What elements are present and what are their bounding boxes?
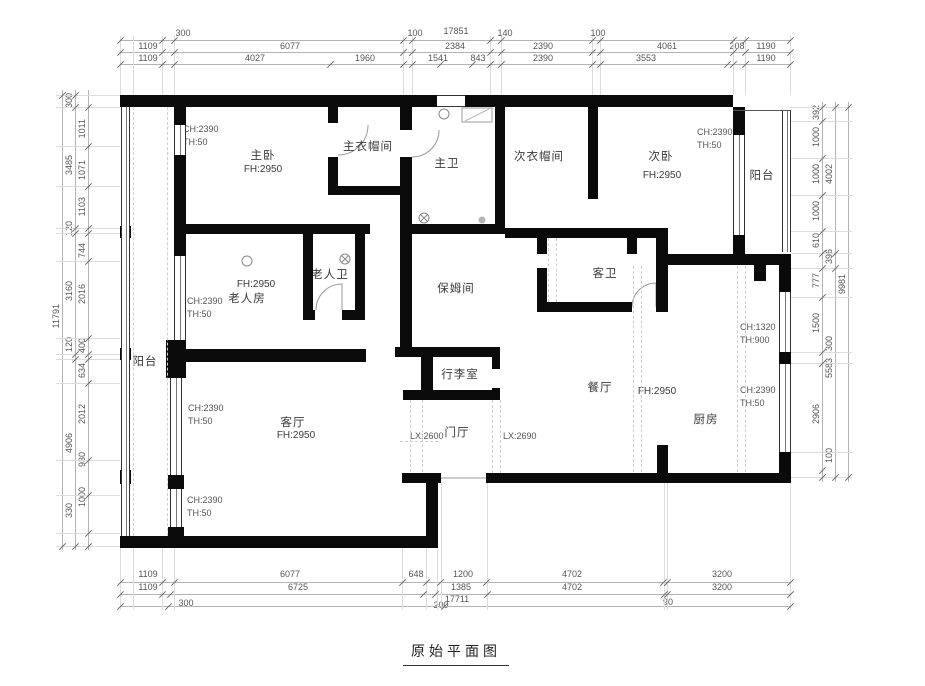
dimension-line: [120, 52, 790, 53]
dim-label: 610: [812, 233, 821, 248]
dim-label: 6077: [280, 42, 300, 51]
foyer-lx-left: LX:2600: [410, 431, 444, 441]
extension-line: [664, 483, 665, 610]
window: [174, 256, 186, 340]
projection-line: [500, 400, 501, 473]
extension-line: [790, 483, 791, 610]
dim-label: 2906: [812, 404, 821, 424]
dim-label: 1000: [812, 127, 821, 147]
room-height-second-bedroom: FH:2950: [643, 170, 681, 181]
wall: [779, 352, 791, 364]
dim-label: 2390: [533, 54, 553, 63]
wall: [403, 390, 500, 400]
dim-label: 1071: [78, 160, 87, 180]
window: [121, 107, 130, 536]
light-icon: [242, 256, 252, 266]
wall: [328, 107, 338, 123]
dim-label: 648: [408, 570, 423, 579]
projection-line: [133, 107, 134, 536]
projection-line: [422, 400, 423, 472]
wall: [303, 310, 315, 320]
wall: [120, 95, 733, 107]
wall: [168, 527, 184, 537]
note-line: CH:2390: [183, 123, 219, 136]
dim-label: 4702: [562, 570, 582, 579]
wall: [174, 228, 186, 256]
window: [779, 364, 791, 452]
dim-label: 3200: [712, 570, 732, 579]
wall: [402, 473, 441, 483]
dim-label: 9981: [838, 274, 847, 294]
dim-label: 4027: [245, 54, 265, 63]
wall: [174, 224, 370, 234]
dim-label: 17851: [443, 27, 468, 36]
dim-label: 1109: [138, 583, 157, 592]
note-line: TH:50: [183, 136, 219, 149]
dimension-line: [120, 40, 790, 41]
wall: [779, 452, 791, 483]
projection-line: [633, 266, 634, 472]
toilet-icon: [340, 254, 350, 264]
extension-line: [56, 95, 120, 96]
wall: [754, 265, 766, 281]
dim-label: 1541: [428, 54, 448, 63]
dim-label: 3160: [65, 281, 74, 301]
room-label-second-bedroom: 次卧: [649, 148, 674, 164]
note-line: CH:2390: [187, 295, 223, 308]
note-line: TH:50: [187, 507, 223, 520]
dim-label: 300: [825, 336, 834, 351]
dimension-line: [120, 64, 790, 65]
note-line: CH:2390: [187, 494, 223, 507]
extension-line: [162, 548, 163, 610]
dim-label: 5583: [825, 358, 834, 378]
window-note: CH:2390TH:50: [697, 126, 733, 152]
wall: [492, 357, 500, 369]
room-label-living-room: 客厅: [281, 414, 306, 430]
dimension-line: [62, 90, 63, 550]
dim-label: 777: [812, 273, 821, 288]
floor-plan-canvas: 300 17851 100 140 100 208 1109 6077 2384…: [0, 0, 925, 686]
room-label-elder-room: 老人房: [228, 290, 266, 306]
dim-label: 1190: [756, 54, 775, 63]
wall: [400, 107, 412, 130]
room-label-kitchen: 厨房: [694, 411, 719, 427]
window-note: CH:2390TH:50: [183, 123, 219, 149]
extension-line: [120, 548, 121, 610]
wall: [588, 107, 598, 199]
projection-line: [556, 238, 557, 302]
dim-label: 6077: [280, 570, 300, 579]
dim-label: 100: [825, 448, 834, 463]
dim-label: 3553: [636, 54, 656, 63]
room-label-balcony-right: 阳台: [750, 167, 775, 183]
window: [733, 135, 745, 235]
balcony-edge-line: [733, 110, 791, 111]
dim-label: 4061: [657, 42, 677, 51]
room-label-nanny-room: 保姆间: [437, 280, 475, 296]
room-label-master-bath: 主卫: [435, 155, 460, 171]
dimension-line: [120, 582, 790, 583]
dim-label: 4906: [65, 433, 74, 453]
window: [174, 125, 186, 155]
wall: [495, 107, 505, 234]
dim-label: 1960: [355, 54, 375, 63]
dim-label: 2016: [78, 284, 87, 304]
room-label-luggage-room: 行李室: [441, 366, 479, 382]
dim-label: 1000: [812, 201, 821, 221]
note-line: TH:50: [188, 415, 224, 428]
dim-label: 4002: [825, 164, 834, 184]
extension-line: [441, 483, 442, 610]
wall: [733, 235, 745, 265]
dim-label: 3485: [65, 155, 74, 175]
room-label-balcony-left: 阳台: [133, 353, 158, 369]
note-line: TH:50: [187, 308, 223, 321]
room-label-dining-room: 餐厅: [588, 379, 613, 395]
wall: [303, 234, 313, 320]
extension-line: [437, 548, 438, 610]
extension-line: [402, 548, 403, 610]
wall: [733, 107, 745, 135]
wall: [537, 238, 547, 254]
wall: [174, 107, 186, 125]
dim-label: 11791: [52, 304, 61, 328]
window: [170, 489, 182, 527]
room-label-guest-bath: 客卫: [593, 265, 618, 281]
extension-line: [174, 548, 175, 610]
wall: [426, 473, 438, 548]
room-height-living-room: FH:2950: [277, 430, 315, 441]
wall: [779, 258, 791, 292]
projection-line: [737, 266, 738, 472]
drawing-title: 原始平面图: [403, 641, 509, 666]
wall: [120, 536, 438, 548]
foyer-lx-right: LX:2690: [503, 431, 537, 441]
extension-line: [487, 483, 488, 610]
dim-label: 2012: [78, 404, 87, 424]
room-height-dining-room: FH:2950: [638, 386, 676, 397]
window: [437, 95, 465, 107]
projection-line: [492, 400, 493, 473]
wall: [400, 224, 505, 234]
dim-label: 1000: [812, 164, 821, 184]
dimension-line: [848, 102, 849, 482]
extension-line: [133, 548, 134, 610]
wall: [174, 155, 186, 228]
dim-label: 1103: [78, 197, 87, 216]
projection-line: [400, 441, 438, 442]
counter-icon: [462, 108, 492, 122]
dimension-line: [120, 594, 790, 595]
note-line: TH:50: [697, 139, 733, 152]
toilet-icon: [419, 213, 429, 223]
wall: [492, 388, 500, 400]
projection-line: [410, 400, 411, 472]
wall: [486, 473, 790, 483]
wall: [657, 445, 668, 473]
wall: [627, 228, 637, 254]
dimension-line: [75, 90, 76, 550]
window: [170, 378, 182, 475]
dimension-line: [88, 90, 89, 550]
dim-label: 634: [78, 363, 87, 378]
extension-line: [791, 452, 852, 453]
extension-line: [133, 36, 134, 95]
dim-label: 17711: [445, 595, 469, 604]
wall: [660, 254, 791, 265]
room-label-second-cloak: 次衣帽间: [514, 148, 564, 164]
room-label-master-bedroom: 主卧: [251, 147, 276, 163]
dim-label: 1109: [138, 42, 157, 51]
room-label-master-cloak: 主衣帽间: [343, 138, 393, 154]
wall: [342, 310, 365, 320]
dim-label: 1011: [78, 119, 87, 138]
wall: [355, 234, 365, 320]
dim-label: 1200: [453, 570, 473, 579]
dim-label: 1500: [812, 313, 821, 333]
room-height-elder-room: FH:2950: [237, 279, 275, 290]
dimension-line: [835, 102, 836, 482]
dim-label: 3200: [712, 583, 732, 592]
dim-label: 1190: [756, 42, 775, 51]
window-note: CH:2390TH:50: [187, 494, 223, 520]
window: [782, 110, 791, 252]
room-label-foyer: 门厅: [445, 424, 470, 440]
projection-line: [641, 266, 642, 472]
window: [779, 292, 791, 352]
room-label-elder-bath: 老人卫: [311, 266, 349, 282]
wall: [168, 475, 184, 489]
dim-label: 1109: [138, 54, 157, 63]
dim-label: 4702: [562, 583, 582, 592]
dimension-line: [120, 606, 790, 607]
note-line: CH:2390: [697, 126, 733, 139]
dim-label: 120: [65, 337, 74, 352]
dim-label: 2384: [445, 42, 465, 51]
room-height-master-bedroom: FH:2950: [244, 164, 282, 175]
wall: [395, 347, 500, 357]
extension-line: [426, 548, 427, 610]
drain-icon: [479, 217, 486, 224]
wall: [505, 228, 668, 238]
wall: [174, 349, 366, 362]
window-note: CH:2390TH:50: [188, 402, 224, 428]
dim-label: 744: [78, 243, 87, 258]
dim-label: 1385: [451, 583, 471, 592]
projection-line: [745, 266, 746, 472]
wall: [400, 157, 412, 357]
dim-label: 6725: [288, 583, 308, 592]
dim-label: 2390: [533, 42, 553, 51]
sink-icon: [439, 109, 449, 119]
wall: [537, 302, 632, 312]
window-note: CH:2390TH:50: [187, 295, 223, 321]
projection-line: [548, 238, 549, 302]
note-line: CH:2390: [188, 402, 224, 415]
projection-line: [167, 107, 168, 536]
dim-label: 1109: [138, 570, 157, 579]
wall: [656, 228, 668, 312]
dim-label: 330: [65, 503, 74, 518]
